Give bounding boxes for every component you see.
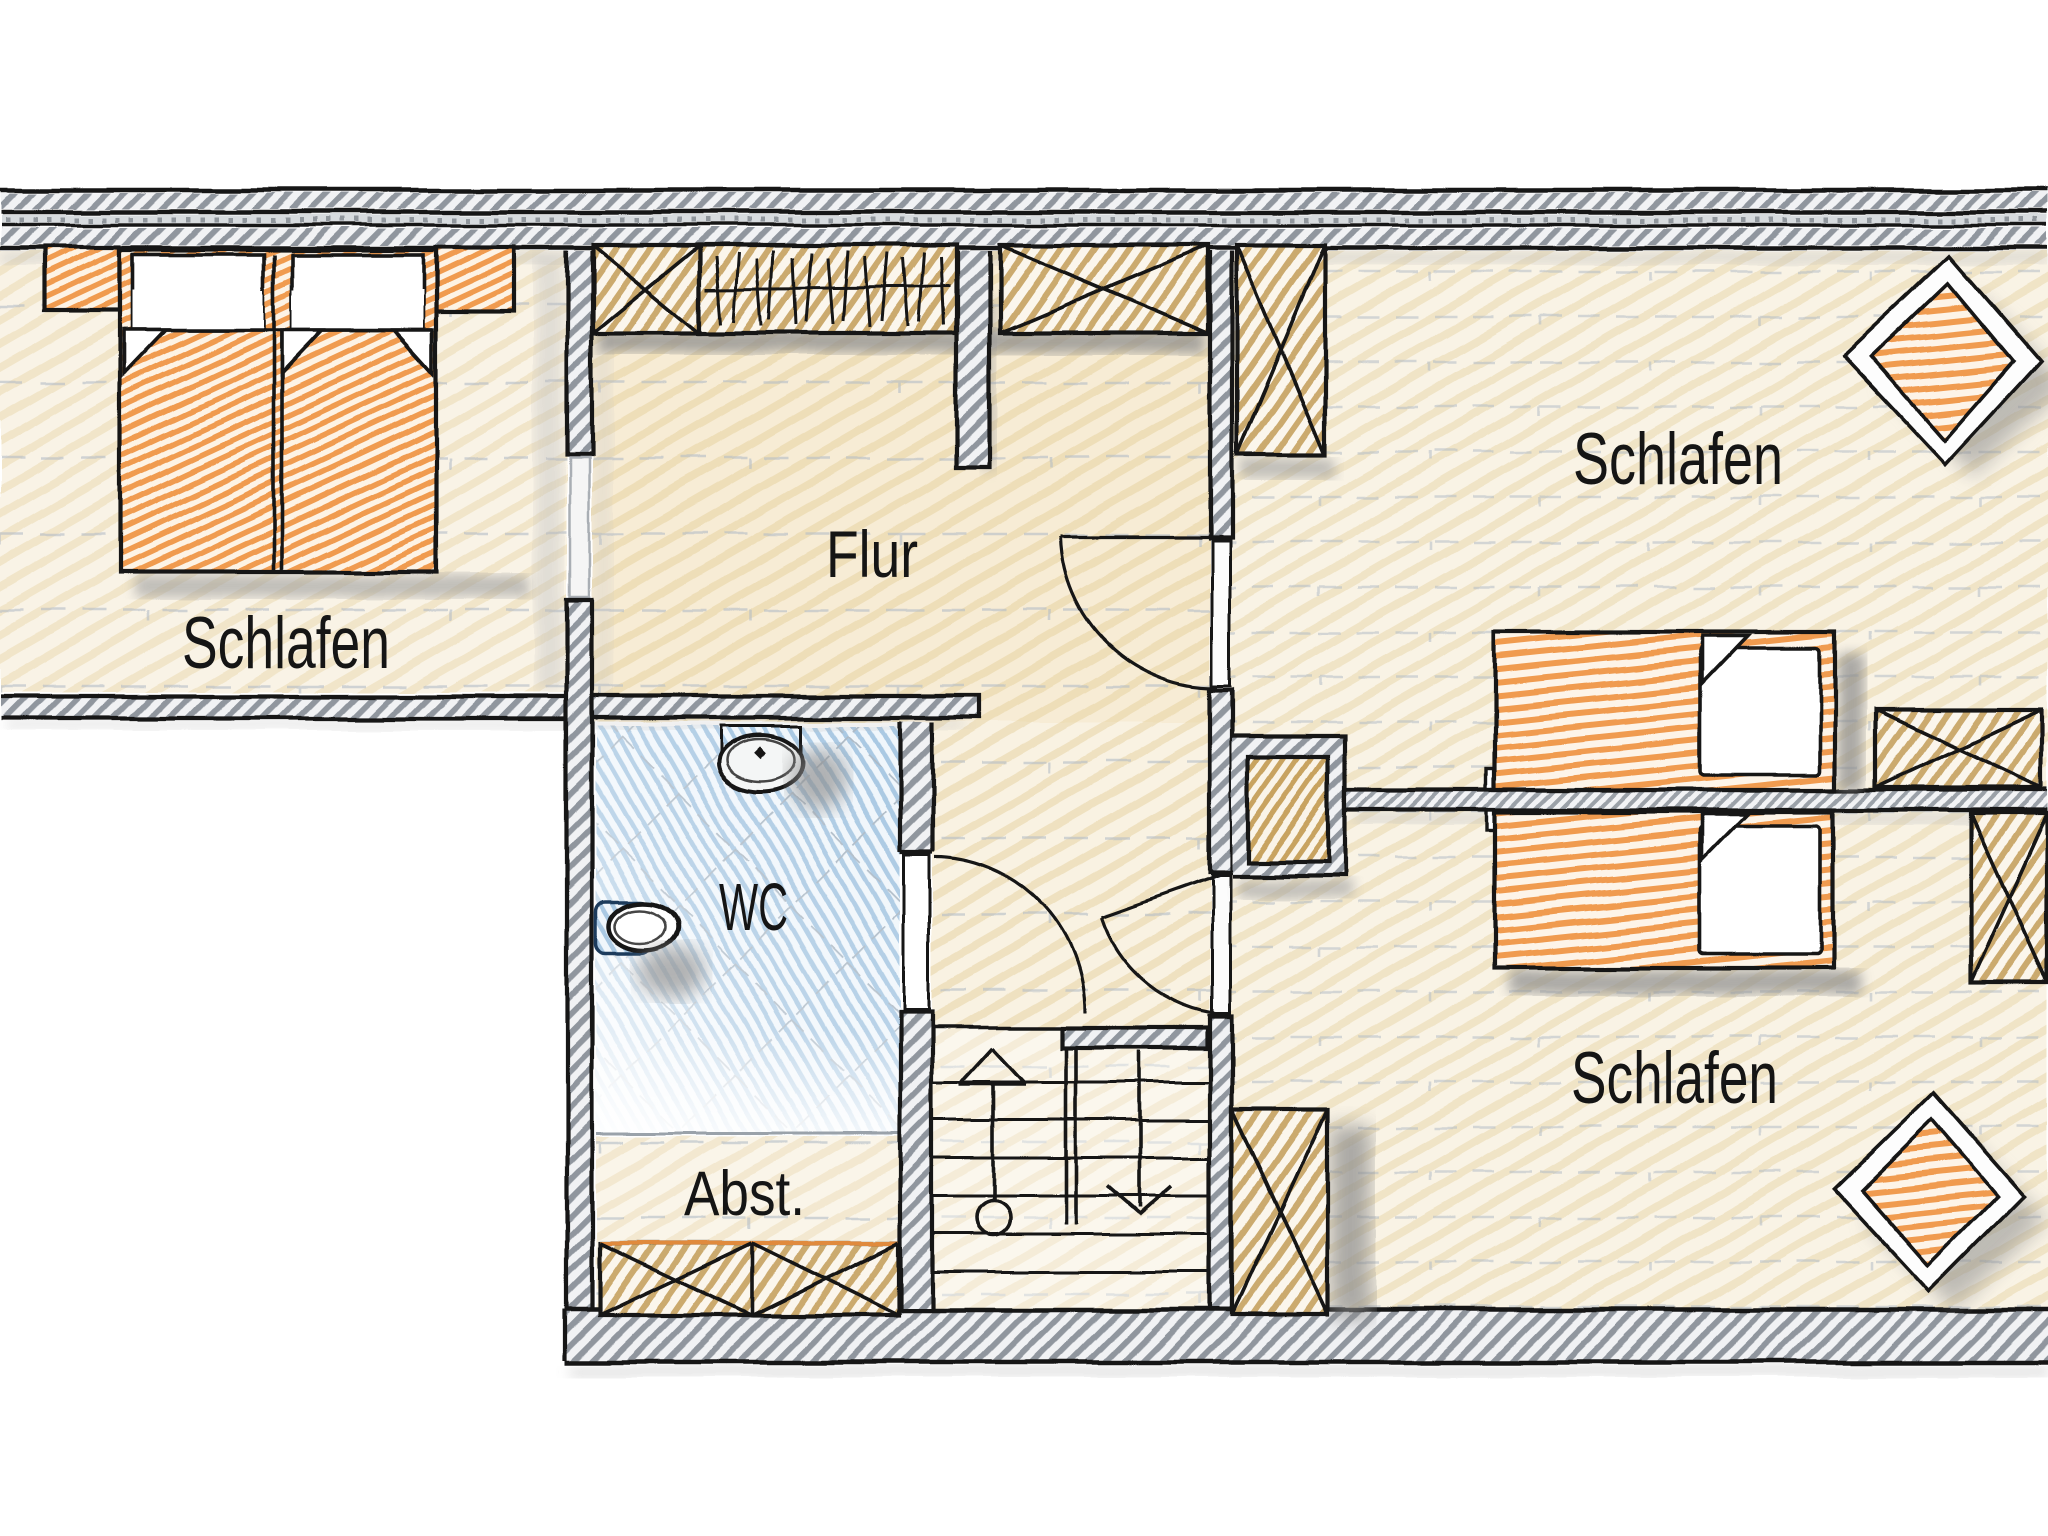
svg-text:Abst.: Abst. [684, 1159, 805, 1229]
svg-text:WC: WC [719, 870, 788, 945]
svg-text:Schlafen: Schlafen [182, 603, 390, 684]
svg-text:Schlafen: Schlafen [1571, 1038, 1778, 1119]
svg-text:Flur: Flur [826, 517, 918, 591]
svg-text:Schlafen: Schlafen [1573, 419, 1783, 500]
